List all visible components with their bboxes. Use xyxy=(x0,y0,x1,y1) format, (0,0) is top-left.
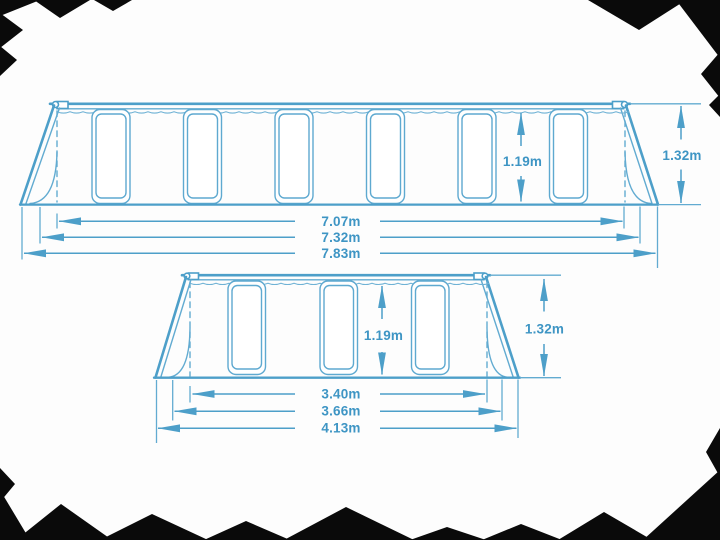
dimension-label: 1.32m xyxy=(525,322,564,337)
wall-panel xyxy=(550,110,588,204)
dimension-total-width: 7.83m xyxy=(24,246,656,261)
water-line xyxy=(57,112,629,113)
wall-panel xyxy=(320,281,358,375)
diagram-canvas: 7.07m 7.32m 7.83m 1.19m 1.32m xyxy=(0,0,720,540)
dimension-inner-width: 3.40m xyxy=(193,387,486,402)
right-leg xyxy=(626,106,658,205)
left-leg xyxy=(156,277,187,378)
wall-panel xyxy=(412,281,450,375)
dimension-wall-height: 1.19m xyxy=(503,113,542,202)
dimension-frame-width: 3.66m xyxy=(175,404,501,419)
dimension-label: 3.40m xyxy=(321,387,360,402)
dimension-label: 1.19m xyxy=(364,328,403,343)
dimension-label: 1.32m xyxy=(662,148,701,163)
right-leg xyxy=(486,277,519,378)
dimension-total-height: 1.32m xyxy=(662,106,701,203)
liner-bulge xyxy=(30,152,57,204)
left-leg-inner xyxy=(161,280,191,377)
dimension-wall-height: 1.19m xyxy=(364,286,403,375)
left-leg-inner xyxy=(26,108,60,204)
small-pool-end-view: 3.40m 3.66m 4.13m 1.19m 1.32m xyxy=(154,273,564,443)
wall-panel xyxy=(458,110,496,204)
wall-panel xyxy=(92,110,130,204)
dimension-label: 4.13m xyxy=(321,421,360,436)
left-leg xyxy=(21,106,55,205)
right-leg-inner xyxy=(481,280,513,377)
dimension-total-width: 4.13m xyxy=(158,421,517,436)
dimension-label: 1.19m xyxy=(503,154,542,169)
liner-bulge xyxy=(168,328,190,377)
dimension-total-height: 1.32m xyxy=(525,279,564,376)
dimension-label: 7.32m xyxy=(321,230,360,245)
dimension-frame-width: 7.32m xyxy=(42,230,639,245)
wall-panel xyxy=(184,110,222,204)
dimension-label: 7.07m xyxy=(321,214,360,229)
large-pool-side-view: 7.07m 7.32m 7.83m 1.19m 1.32m xyxy=(20,102,702,269)
torn-edge-border xyxy=(0,0,720,540)
dimension-inner-width: 7.07m xyxy=(59,214,623,229)
wall-panel xyxy=(228,281,266,375)
dimension-label: 7.83m xyxy=(321,246,360,261)
pool-dimensions-diagram: 7.07m 7.32m 7.83m 1.19m 1.32m xyxy=(0,0,720,540)
wall-panel xyxy=(275,110,313,204)
dimension-label: 3.66m xyxy=(321,404,360,419)
wall-panel xyxy=(367,110,405,204)
